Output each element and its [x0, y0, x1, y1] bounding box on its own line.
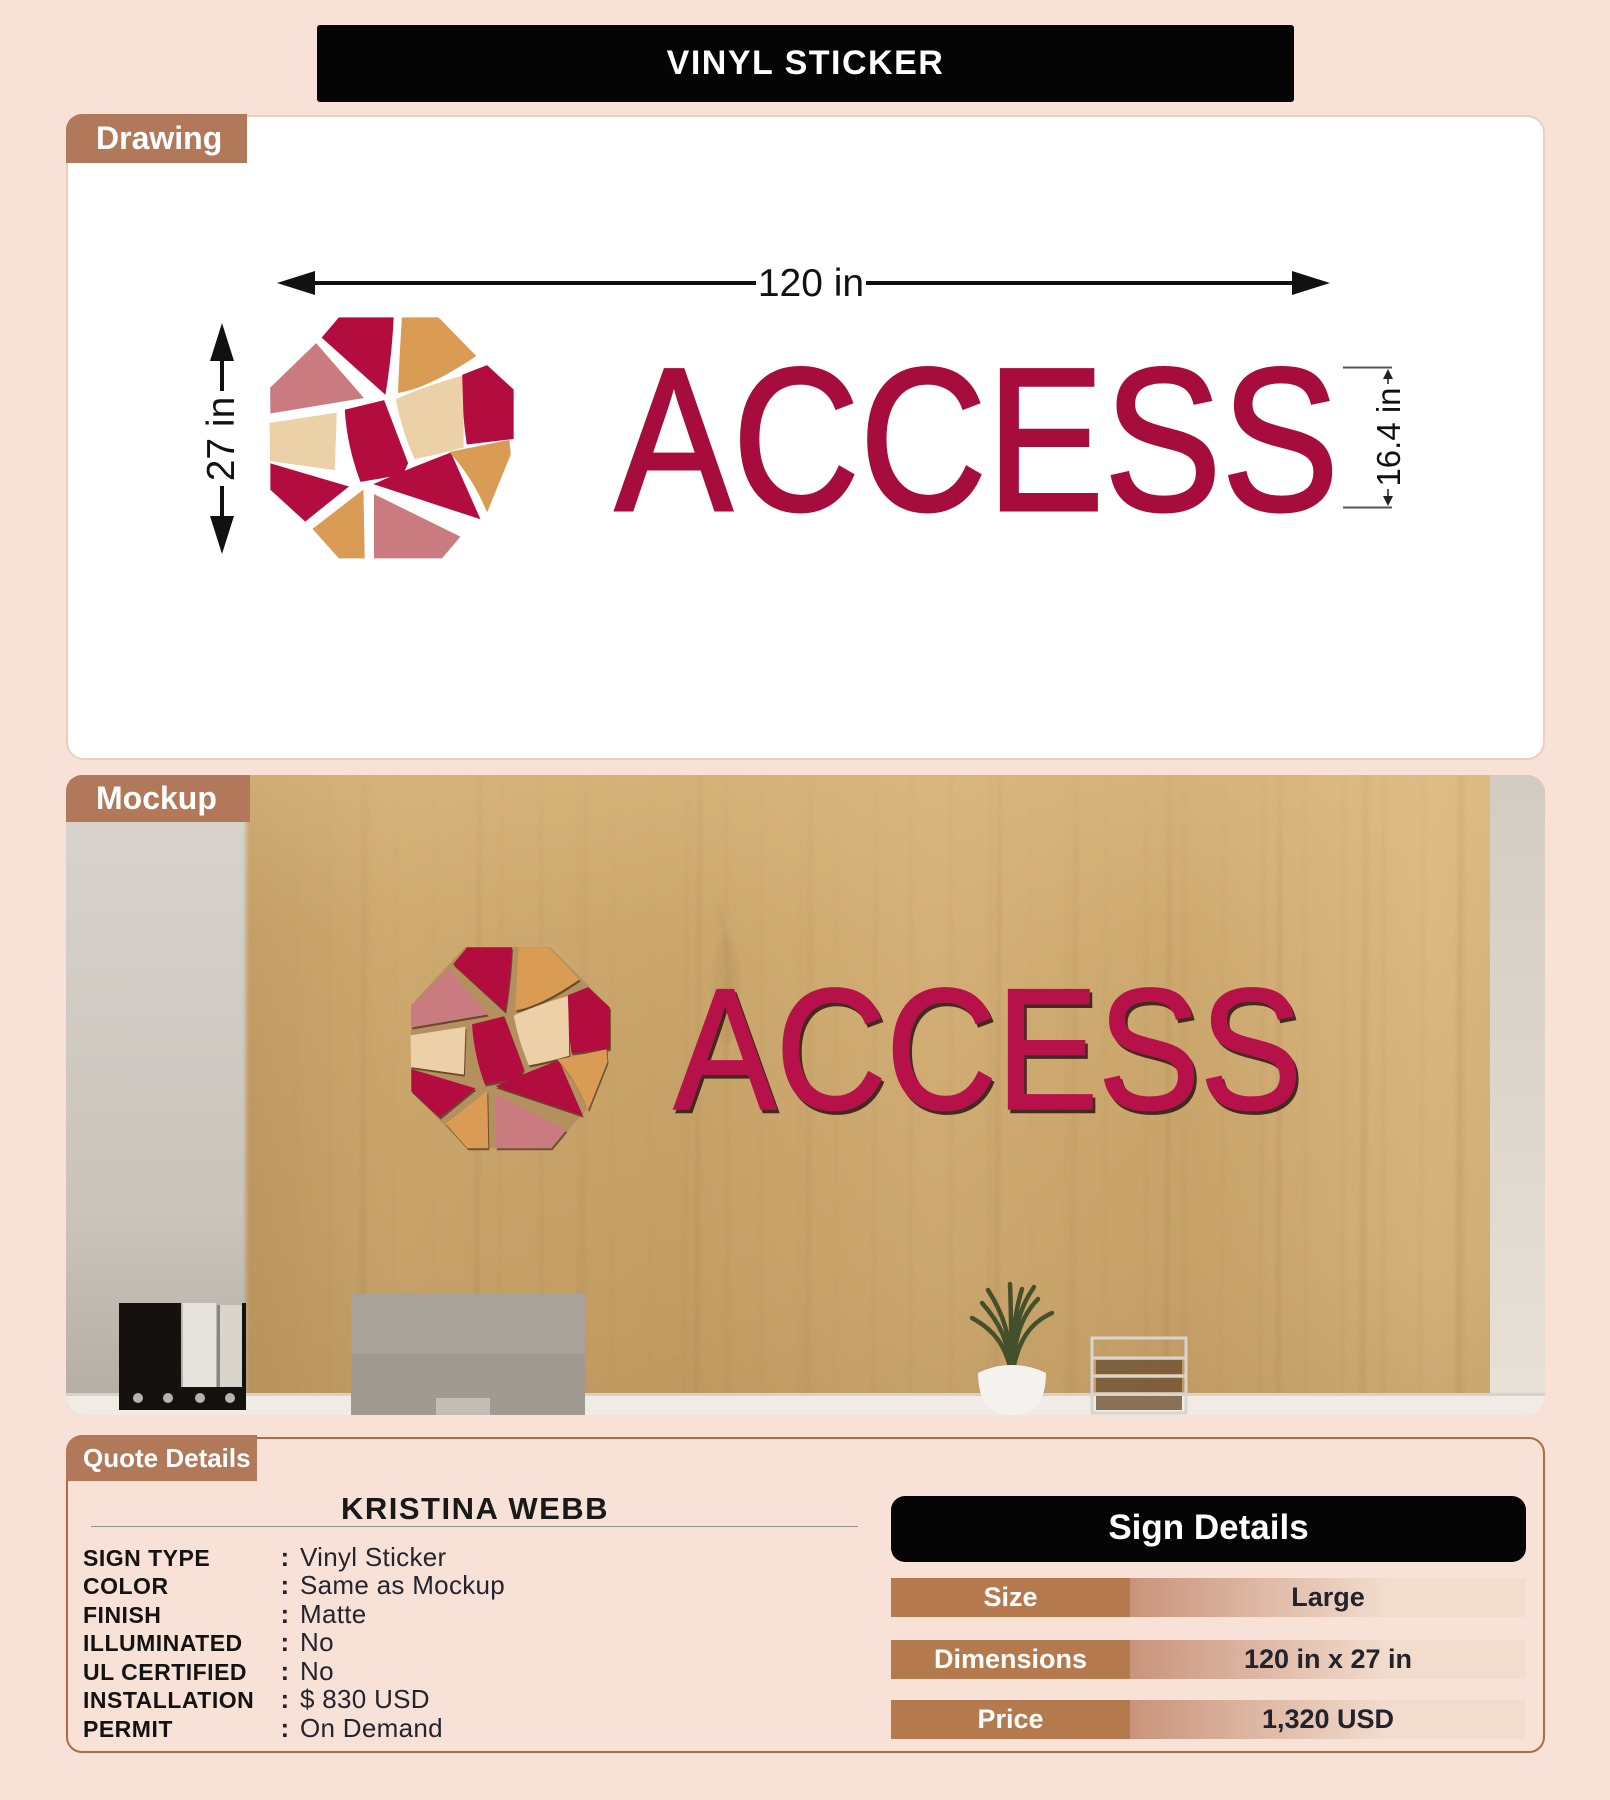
svg-text:16.4 in: 16.4 in	[1370, 387, 1407, 486]
svg-text:ACCESS: ACCESS	[615, 326, 1339, 554]
svg-text:ACCESS: ACCESS	[674, 954, 1302, 1146]
svg-text:27 in: 27 in	[200, 397, 243, 482]
svg-text:120 in: 120 in	[758, 262, 864, 305]
